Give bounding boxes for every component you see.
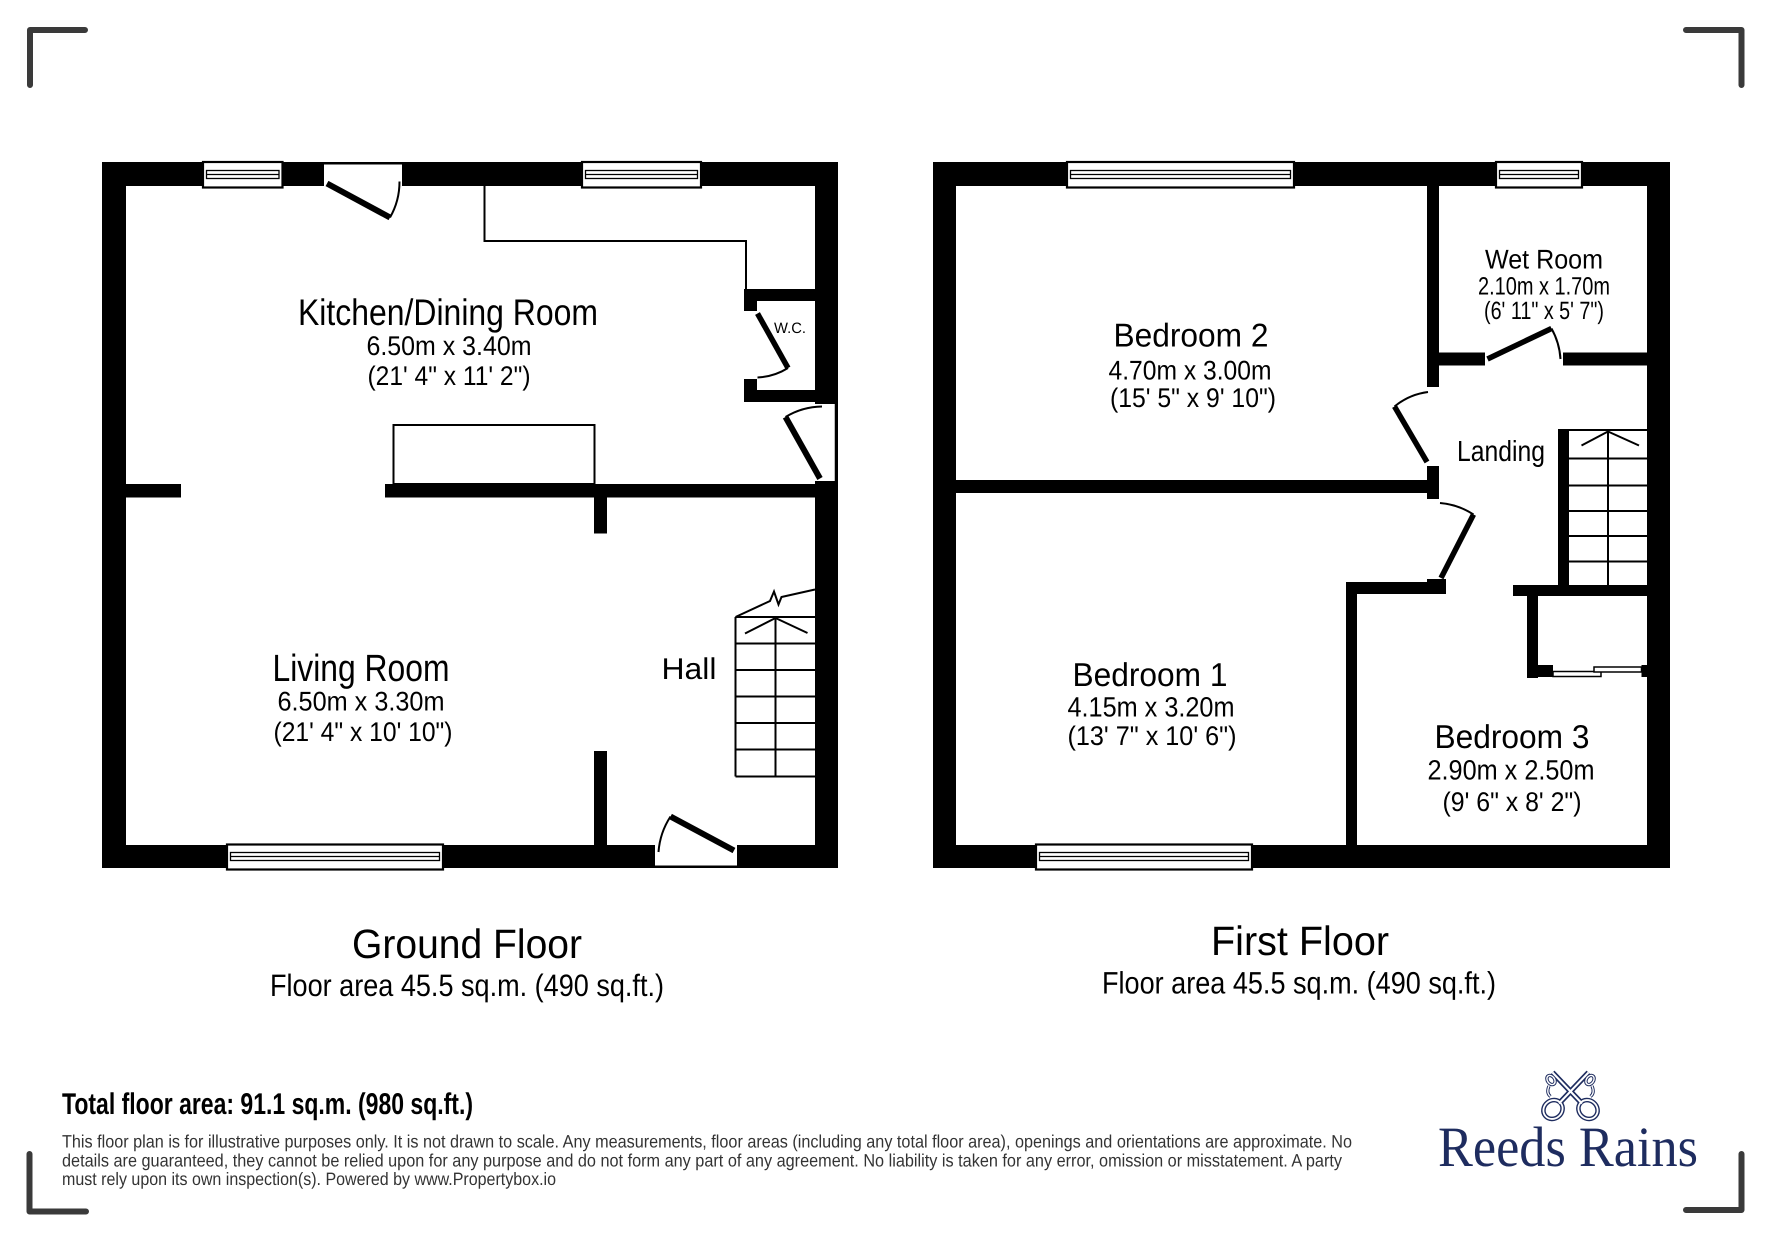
svg-text:Hall: Hall — [662, 653, 717, 686]
svg-text:(9' 6" x 8' 2"): (9' 6" x 8' 2") — [1443, 787, 1582, 817]
svg-text:Floor area 45.5 sq.m. (490 sq.: Floor area 45.5 sq.m. (490 sq.ft.) — [270, 968, 664, 1003]
svg-text:Kitchen/Dining Room: Kitchen/Dining Room — [298, 292, 598, 333]
svg-text:4.70m x 3.00m: 4.70m x 3.00m — [1109, 356, 1272, 386]
svg-text:details are guaranteed, they c: details are guaranteed, they cannot be r… — [62, 1150, 1342, 1170]
svg-text:Reeds Rains: Reeds Rains — [1438, 1116, 1698, 1179]
svg-text:(21' 4" x 11' 2"): (21' 4" x 11' 2") — [368, 361, 531, 391]
svg-text:(21' 4" x 10' 10"): (21' 4" x 10' 10") — [274, 717, 453, 747]
svg-text:Living Room: Living Room — [273, 648, 450, 690]
svg-text:Bedroom 2: Bedroom 2 — [1114, 317, 1269, 354]
svg-text:(15' 5" x 9' 10"): (15' 5" x 9' 10") — [1110, 383, 1276, 413]
svg-text:Landing: Landing — [1457, 436, 1545, 468]
svg-text:Wet Room: Wet Room — [1485, 245, 1603, 275]
svg-text:(6' 11" x 5' 7"): (6' 11" x 5' 7") — [1484, 297, 1604, 325]
svg-text:W.C.: W.C. — [774, 320, 806, 337]
svg-text:6.50m x 3.30m: 6.50m x 3.30m — [278, 687, 445, 717]
svg-text:Bedroom 1: Bedroom 1 — [1073, 656, 1228, 693]
svg-text:Floor area 45.5 sq.m. (490 sq.: Floor area 45.5 sq.m. (490 sq.ft.) — [1102, 966, 1496, 1001]
svg-text:First Floor: First Floor — [1211, 918, 1389, 964]
svg-text:Bedroom 3: Bedroom 3 — [1435, 718, 1590, 755]
svg-text:Total floor area: 91.1 sq.m. (: Total floor area: 91.1 sq.m. (980 sq.ft.… — [62, 1088, 473, 1121]
svg-text:This floor plan is for illustr: This floor plan is for illustrative purp… — [62, 1132, 1352, 1152]
svg-text:must rely upon its own inspect: must rely upon its own inspection(s). Po… — [62, 1169, 556, 1189]
svg-text:Ground Floor: Ground Floor — [352, 921, 582, 967]
svg-text:6.50m x 3.40m: 6.50m x 3.40m — [367, 331, 532, 361]
svg-text:4.15m x 3.20m: 4.15m x 3.20m — [1068, 692, 1235, 723]
svg-text:(13' 7" x 10' 6"): (13' 7" x 10' 6") — [1068, 721, 1237, 751]
svg-text:2.90m x 2.50m: 2.90m x 2.50m — [1428, 755, 1595, 786]
